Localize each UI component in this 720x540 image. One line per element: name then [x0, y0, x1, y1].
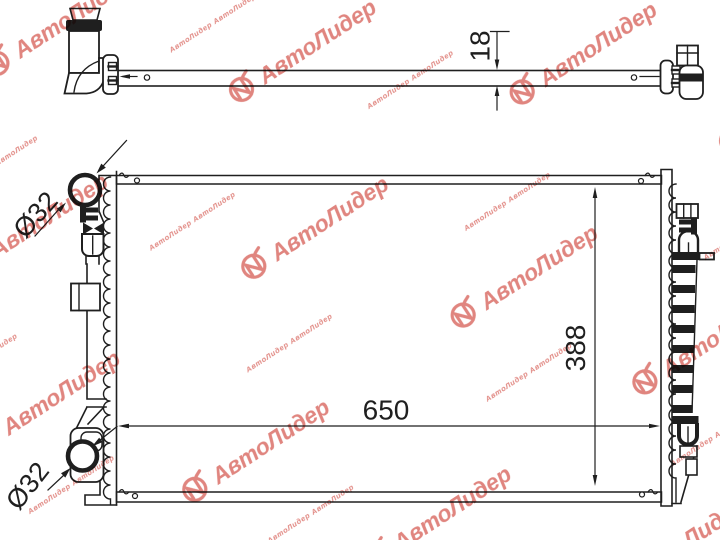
watermark-logo-icon: [0, 45, 15, 79]
technical-drawing-page: 18: [0, 0, 720, 540]
watermark-logo-icon: [238, 248, 272, 282]
core-top-band: [117, 176, 662, 185]
watermark-logo-icon: [447, 297, 481, 331]
watermark-small-text: АвтоЛидер АвтоЛидер: [483, 341, 574, 405]
top-view-right-connector: [661, 46, 704, 100]
watermark-small-text: АвтоЛидер АвтоЛидер: [243, 311, 334, 375]
watermark-text: АвтоЛидер: [265, 170, 393, 266]
tube-hole-left: [144, 75, 149, 80]
radiator-drawing: 18: [0, 9, 714, 516]
watermark-text: АвтоЛидер: [656, 286, 720, 382]
dimension-core-width: 650: [118, 395, 660, 429]
front-view: [68, 170, 714, 507]
right-side-plate: [661, 170, 672, 507]
watermark-small-text: АвтоЛидер АвтоЛидер: [265, 482, 356, 540]
dimension-650-label: 650: [363, 395, 410, 426]
watermark-small-text: АвтоЛидер АвтоЛидер: [701, 199, 720, 263]
watermark-text: АвтоЛидер: [474, 219, 602, 315]
tube-hole-right: [631, 75, 636, 80]
watermark-small-text: АвтоЛидер АвтоЛидер: [167, 0, 258, 55]
top-view-tube: [116, 71, 661, 87]
dimension-18-label: 18: [464, 30, 495, 61]
watermark-text: АвтоЛидер: [206, 394, 334, 490]
watermark-logo-icon: [629, 363, 663, 397]
radiator-technical-drawing: 18: [0, 0, 720, 540]
watermark-logo-icon: [715, 122, 720, 156]
watermark-small-text: АвтоЛидер АвтоЛидер: [146, 190, 237, 254]
watermark-small-text: АвтоЛидер АвтоЛидер: [0, 133, 40, 197]
watermark-small-text: АвтоЛидер АвтоЛидер: [0, 331, 19, 395]
left-mounting-bracket: [71, 284, 100, 311]
watermark-text: АвтоЛидер: [0, 345, 125, 441]
